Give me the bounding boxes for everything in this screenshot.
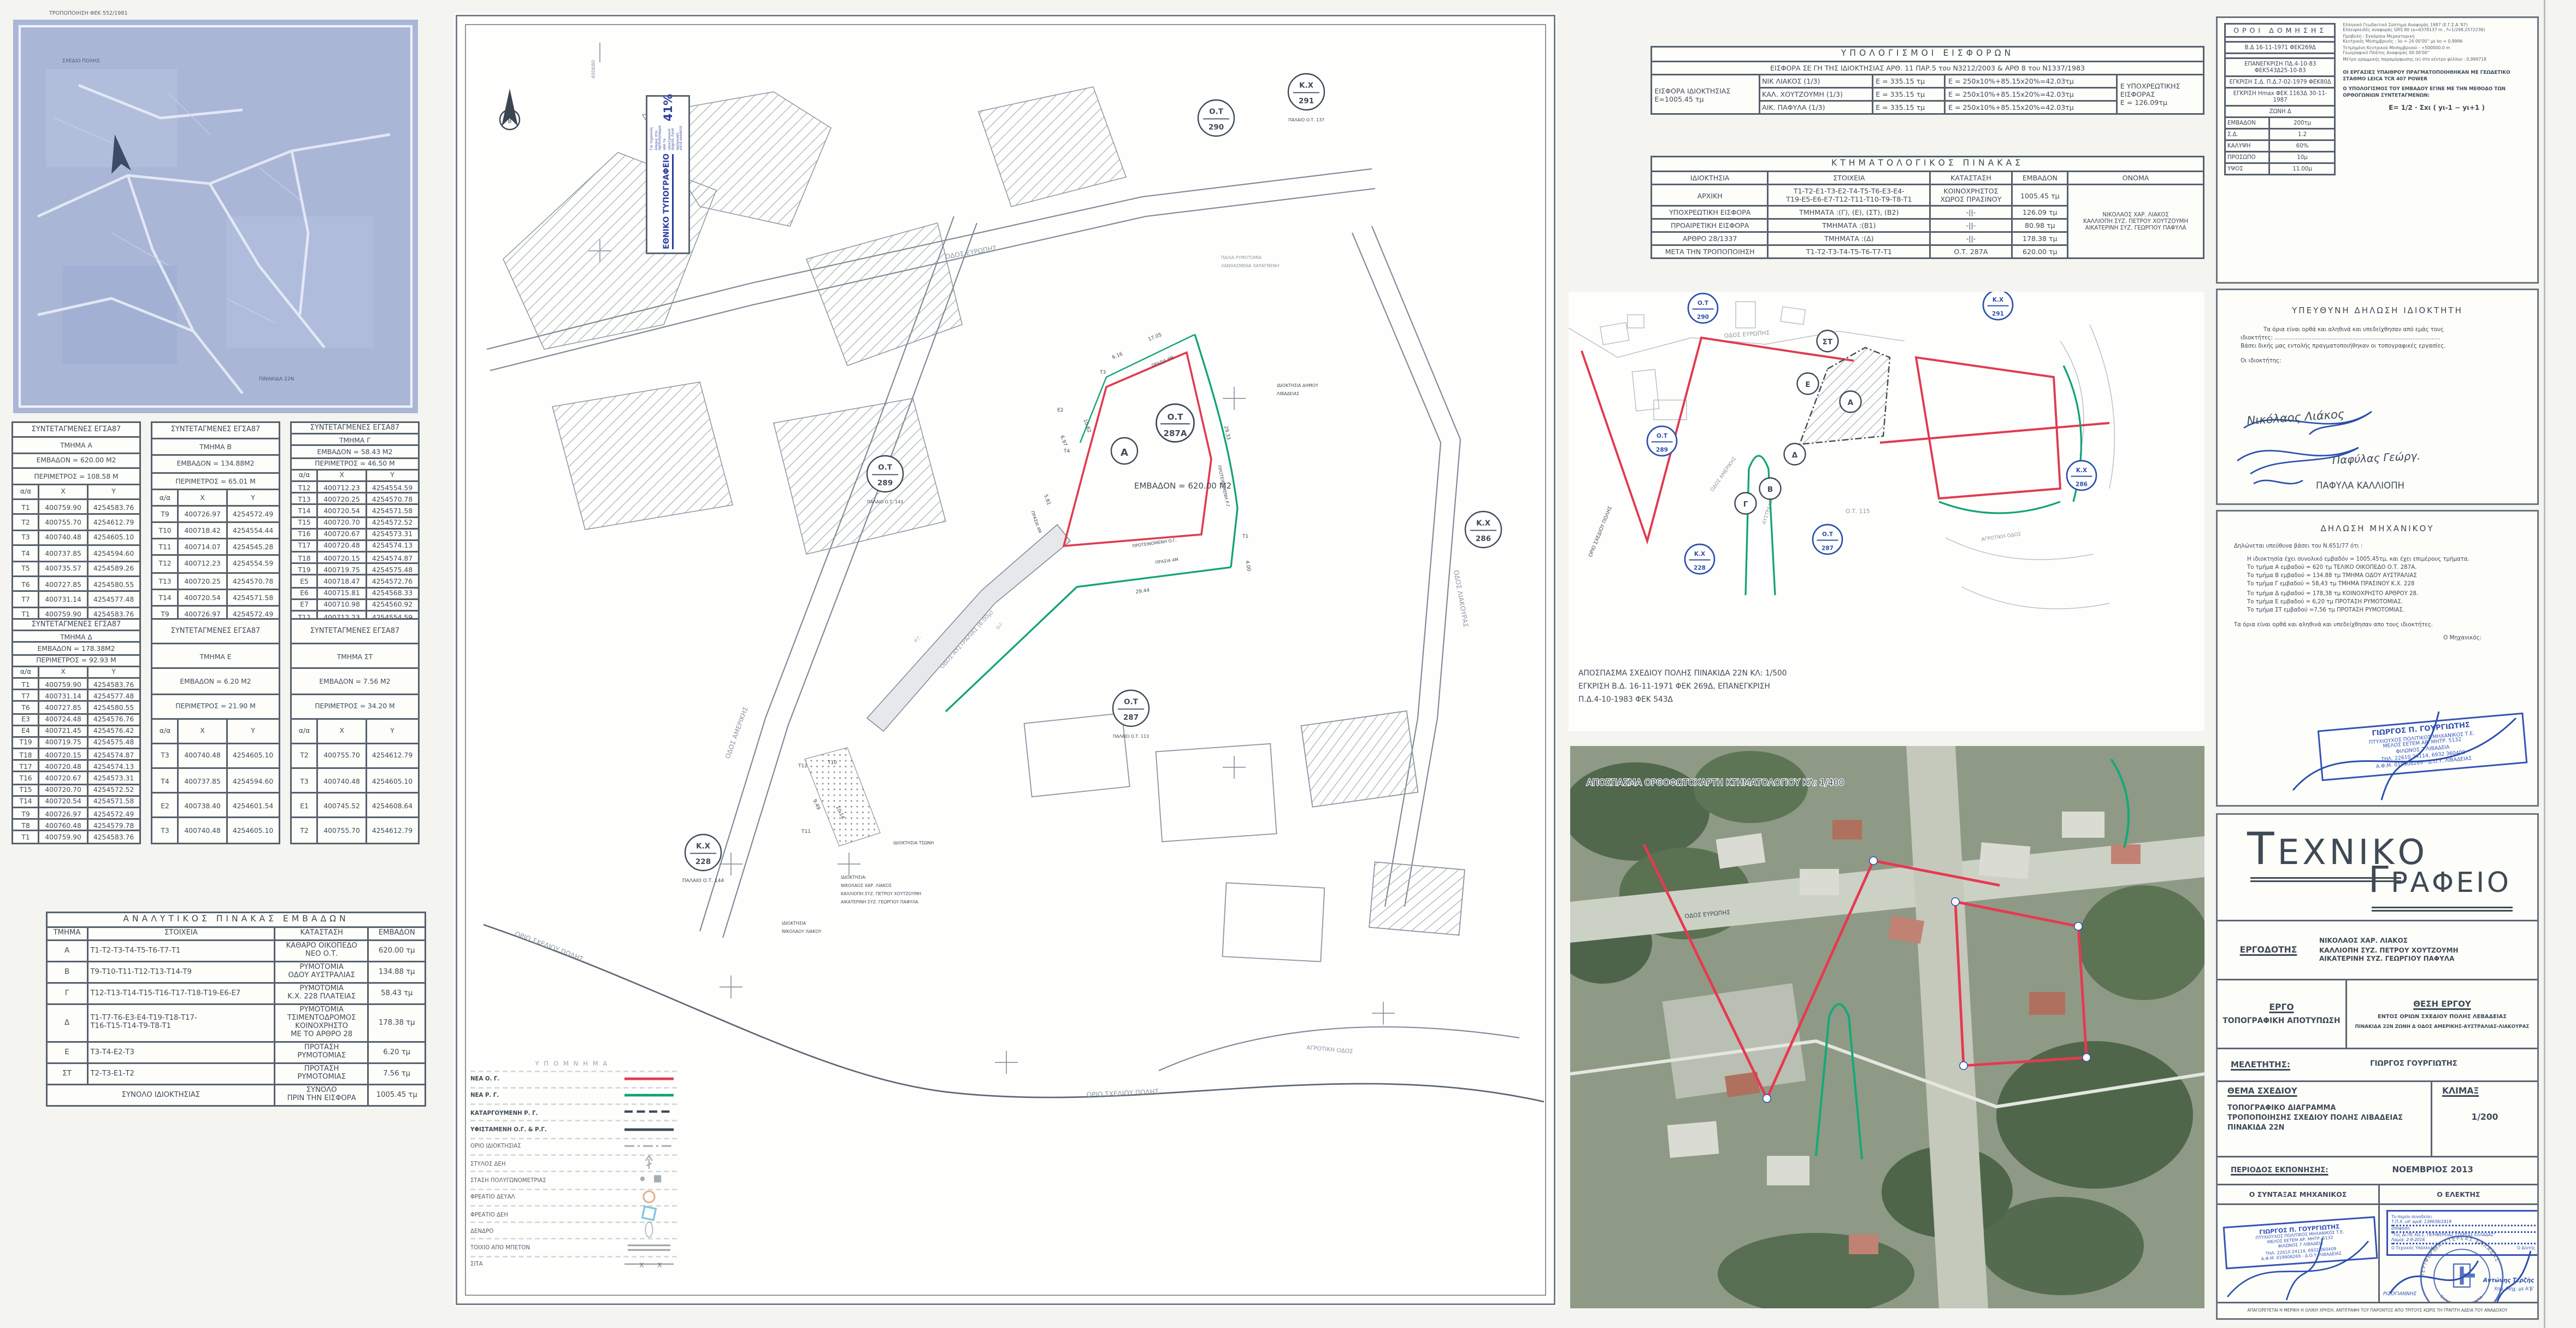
terms-row: [2225, 37, 2336, 42]
coord-row: Τ1400759.904254583.76: [13, 678, 140, 690]
north-arrow-icon: Β: [500, 89, 520, 130]
svg-text:228: 228: [1694, 565, 1706, 572]
cadastral-table: ΚΤΗΜΑΤΟΛΟΓΙΚΟΣ ΠΙΝΑΚΑΣΙΔΙΟΚΤΗΣΙΑΣΤΟΙΧΕΙΑ…: [1650, 156, 2204, 259]
coord-row: Τ15400720.704254572.52: [13, 784, 140, 796]
project-label: ΕΡΓΟ: [2269, 1003, 2294, 1013]
svg-text:ΟΡΙΟ ΣΧΕΔΙΟΥ ΠΟΛΗΣ: ΟΡΙΟ ΣΧΕΔΙΟΥ ΠΟΛΗΣ: [1087, 1088, 1159, 1098]
designer-label: ΜΕΛΕΤΗΤΗΣ:: [2218, 1060, 2290, 1070]
svg-text:ΠΙΝΑΚΙΔΑ 22Ν: ΠΙΝΑΚΙΔΑ 22Ν: [259, 377, 294, 382]
coord-row: Τ17400720.484254574.13: [13, 760, 140, 772]
coord-row: Τ14400720.544254571.58: [13, 796, 140, 808]
scale-label: ΚΛΙΜΑΞ: [2442, 1087, 2527, 1097]
brand-row: ΤΕΧΝΙΚΟ ΓΡΑΦΕΙΟ: [2218, 815, 2537, 920]
legend-item: ΣΤΥΛΟΣ ΔΕΗ: [470, 1154, 677, 1171]
coord-row: Τ11400714.074254545.28: [152, 539, 280, 556]
owner-municipality-2: ΛΙΒΑΔΕΙΑΣ: [1277, 391, 1299, 396]
legend-item-symbol: [621, 1139, 677, 1154]
coord-row: Τ13400720.254254570.78: [152, 572, 280, 589]
owner-decl-line1: Τα όρια είναι ορθά και αληθινά και υπεδε…: [2241, 326, 2518, 334]
blueprint-map-art: ΣΧΕΔΙΟ ΠΟΛΗΣ ΠΙΝΑΚΙΔΑ 22Ν: [13, 20, 418, 413]
coordinate-tables-row-2: ΣΥΝΤΕΤΑΓΜΕΝΕΣ ΕΓΣΑ87ΤΜΗΜΑ ΔΕΜΒΑΔΟΝ = 178…: [11, 618, 420, 844]
legend-item-label: ΣΙΤΑ: [470, 1261, 483, 1268]
coord-row: Τ3400740.484254605.10: [13, 530, 140, 545]
legend-item-label: ΝΕΑ Ρ. Γ.: [470, 1092, 499, 1099]
svg-text:Κ.Χ: Κ.Χ: [1993, 297, 2003, 303]
owner-signatures: Νικόλαος Λιάκος Παφύλας Γεώργ. ΠΑΦΥΛΑ ΚΑ…: [2231, 398, 2526, 500]
brand-office: ΓΡΑΦΕΙΟ: [2368, 861, 2512, 902]
svg-text:Ο.Τ: Ο.Τ: [1697, 300, 1709, 307]
boundary-label-2: ΟΡΙΟ ΣΧΕΔΙΟΥ ΠΟΛΗΣ: [1087, 1088, 1159, 1098]
note-ot113: ΠΑΛΑΙΟ Ο.Τ. 113: [1113, 734, 1149, 739]
legend-item-label: ΚΑΤΑΡΓΟΥΜΕΝΗ Ρ. Γ.: [470, 1109, 538, 1116]
coord-row: Τ18400720.154254574.87: [291, 552, 419, 564]
owner-decl-line2: ιδιοκτήτες: ............................…: [2241, 334, 2518, 343]
approval-area: Το παρόν συνοδεύειΤ.Π.Χ. υπ' αριθ. 13993…: [2380, 1205, 2537, 1302]
terms-row: Β.Δ 16-11-1971 ΦΕΚ269Δ: [2225, 42, 2336, 54]
cadastral-title: ΚΤΗΜΑΤΟΛΟΓΙΚΟΣ ΠΙΝΑΚΑΣ: [1652, 157, 2204, 172]
building-terms-table: ΟΡΟΙ ΔΟΜΗΣΗΣΒ.Δ 16-11-1971 ΦΕΚ269ΔΕΠΑΝΕΓ…: [2224, 23, 2336, 175]
titleblock-footer: ΑΠΑΓΟΡΕΥΕΤΑΙ Η ΜΕΡΙΚΗ Η ΟΛΙΚΗ ΧΡΗΣΗ, ΑΝΤ…: [2218, 1302, 2537, 1318]
approval-name-right: Αντώνης Τερζής: [2483, 1277, 2534, 1284]
coord-row: Τ1400759.904254583.76: [13, 831, 140, 843]
engineer-decl-intro: Δηλώνεται υπεύθυνα βάσει του Ν.651/77 ότ…: [2234, 543, 2521, 551]
owner-nik-2: ΝΙΚΟΛΑΟΥ ΛΙΑΚΟΥ: [782, 929, 822, 934]
field-note-2: Ο ΥΠΟΛΟΓΙΣΜΟΣ ΤΟΥ ΕΜΒΑΔΟΥ ΕΓΙΝΕ ΜΕ ΤΗΝ Μ…: [2343, 86, 2531, 99]
approval-title-right: Χημ. Μηχ. με Α'β': [2494, 1285, 2534, 1292]
coordinates-table: ΣΥΝΤΕΤΑΓΜΕΝΕΣ ΕΓΣΑ87ΤΜΗΜΑ ΕΕΜΒΑΔΟΝ = 6.2…: [151, 618, 280, 844]
areas-header: ΚΑΤΑΣΤΑΣΗ: [275, 927, 368, 941]
areas-row: ΕΤ3-Τ4-Ε2-Τ3ΠΡΟΤΑΣΗ ΡΥΜΟΤΟΜΙΑΣ6.20 τμ: [47, 1042, 426, 1063]
coord-row: Τ4400737.854254594.60: [13, 545, 140, 561]
legend-item-symbol: [621, 1154, 677, 1172]
svg-text:Β: Β: [508, 118, 511, 125]
svg-text:ΕΓΚΡΙΣΗ Β.Δ. 16-11-1971 ΦΕΚ 26: ΕΓΚΡΙΣΗ Β.Δ. 16-11-1971 ΦΕΚ 269Δ, ΕΠΑΝΕΓ…: [1578, 682, 1770, 691]
reduction-body: Για τεχνικούς λόγους στο σχεδιάγραμμα, α…: [651, 125, 685, 150]
svg-text:287Α: 287Α: [1164, 428, 1187, 438]
coord-row: Τ18400720.154254574.87: [13, 749, 140, 761]
coord-row: Τ13400720.254254570.78: [291, 493, 419, 505]
coord-row: Τ16400720.674254573.31: [291, 528, 419, 540]
excerpt-boundary-label: ΟΡΙΟ ΣΧΕΔΙΟΥ ΠΟΛΗΣ: [1588, 506, 1614, 558]
owner-tsoni: ΙΔΙΟΚΤΗΣΙΑ ΤΣΩΝΗ: [893, 841, 934, 845]
contrib-right-label: Ε ΥΠΟΧΡΕΩΤΙΚΗΣ ΕΙΣΦΟΡΑΣ Ε = 126.09τμ: [2117, 75, 2204, 114]
legend-item-label: ΣΤΑΣΗ ΠΟΛΥΓΩΝΟΜΕΤΡΙΑΣ: [470, 1177, 546, 1184]
topographic-drawing-sheet: ΤΡΟΠΟΠΟΙΗΣΗ ΦΕΚ 552/1981 ΣΧΕΔΙΟ ΠΟΛΗΣ: [0, 0, 2576, 1328]
dim-616: 6.16: [1111, 351, 1124, 361]
location-line: ΕΝΤΟΣ ΟΡΙΩΝ ΣΧΕΔΙΟΥ ΠΟΛΗΣ ΛΕΒΑΔΕΙΑΣ: [2378, 1013, 2507, 1019]
project-location-row: ΕΡΓΟ ΤΟΠΟΓΡΑΦΙΚΗ ΑΠΟΤΥΠΩΣΗ ΘΕΣΗ ΕΡΓΟΥ ΕΝ…: [2218, 979, 2537, 1048]
geodetic-note: Μέτρο γραμμικής παραμόρφωσης (κ) στο κέν…: [2343, 57, 2494, 62]
engineer-decl-line: Το τμήμα Ε εμβαδού = 6,20 τμ ΠΡΟΤΑΣΗ ΡΥΜ…: [2247, 598, 2521, 606]
block-circle-287A: Ο.Τ 287Α: [1157, 404, 1194, 442]
areas-table: ΑΝΑΛΥΤΙΚΟΣ ΠΙΝΑΚΑΣ ΕΜΒΑΔΩΝΤΜΗΜΑΣΤΟΙΧΕΙΑΚ…: [46, 912, 426, 1107]
coordinate-tables-row-1: ΣΥΝΤΕΤΑΓΜΕΝΕΣ ΕΓΣΑ87ΤΜΗΜΑ ΑΕΜΒΑΔΟΝ = 620…: [11, 421, 420, 624]
excerpt-caption: ΑΠΟΣΠΑΣΜΑ ΣΧΕΔΙΟΥ ΠΟΛΗΣ ΠΙΝΑΚΙΔΑ 22Ν ΚΛ:…: [1578, 669, 1787, 704]
owner-declaration-panel: ΥΠΕΥΘΥΝΗ ΔΗΛΩΣΗ ΙΔΙΟΚΤΗΤΗ Τα όρια είναι …: [2216, 289, 2539, 505]
terms-pair-row: ΠΡΟΣΩΠΟ10μ: [2225, 152, 2336, 163]
subject-line: ΤΟΠΟΓΡΑΦΙΚΟ ΔΙΑΓΡΑΜΜΑ: [2227, 1105, 2421, 1115]
areas-header: ΕΜΒΑΔΟΝ: [368, 927, 425, 941]
location-label: ΘΕΣΗ ΕΡΓΟΥ: [2413, 1000, 2471, 1009]
terms-title: ΟΡΟΙ ΔΟΜΗΣΗΣ: [2225, 24, 2336, 37]
coord-row: Τ4400737.854254594.60: [152, 768, 280, 794]
coord-row: Τ12400712.234254554.59: [152, 556, 280, 573]
cadastral-header: ΚΑΤΑΣΤΑΣΗ: [1930, 172, 2012, 185]
legend-item-label: ΤΟΙΧΙΟ ΑΠΟ ΜΠΕΤΟΝ: [470, 1244, 530, 1251]
point-t12: Τ12: [798, 763, 807, 769]
orthophoto-art: ΑΠΟΣΠΑΣΜΑ ΟΡΘΟΦΩΤΟΧΑΡΤΗ ΚΤΗΜΑΤΟΛΟΓΙΟΥ ΚΛ…: [1570, 746, 2204, 1308]
svg-text:ΟΡΙΟ ΣΧΕΔΙΟΥ ΠΟΛΗΣ: ΟΡΙΟ ΣΧΕΔΙΟΥ ΠΟΛΗΣ: [514, 930, 585, 963]
legend-item-label: ΦΡΕΑΤΙΟ ΔΕΥΑΛ: [470, 1194, 515, 1201]
owner-nik-1: ΙΔΙΟΚΤΗΣΙΑ: [782, 921, 806, 926]
legend-item: ΚΑΤΑΡΓΟΥΜΕΝΗ Ρ. Γ.: [470, 1103, 677, 1120]
owner-declaration-title: ΥΠΕΥΘΥΝΗ ΔΗΛΩΣΗ ΙΔΙΟΚΤΗΤΗ: [2218, 307, 2537, 316]
engineer-declaration-panel: ΔΗΛΩΣΗ ΜΗΧΑΝΙΚΟΥ Δηλώνεται υπεύθυνα βάσε…: [2216, 510, 2539, 807]
dim-1082: 10.82: [1082, 419, 1092, 434]
dim-949: 9.49: [811, 798, 821, 811]
cadastral-owner-names: ΝΙΚΟΛΑΟΣ ΧΑΡ. ΛΙΑΚΟΣ ΚΑΛΛΙΟΠΗ ΣΥΖ. ΠΕΤΡΟ…: [2068, 185, 2204, 258]
geodetic-note: Ελλειψοειδές αναφοράς GRS 80 (a=6378137 …: [2343, 28, 2494, 34]
approval-line: Τ.Π.Χ. υπ' αριθ. 139939/2419: [2391, 1219, 2536, 1226]
areas-row: ΒΤ9-Τ10-Τ11-Τ12-Τ13-Τ14-Τ9ΡΥΜΟΤΟΜΙΑ ΟΔΟΥ…: [47, 962, 426, 983]
coord-row: Τ7400731.144254577.48: [13, 690, 140, 702]
approval-line: Το παρόν συνοδεύει: [2391, 1214, 2536, 1219]
hatched-blocks: [503, 87, 1126, 554]
coord-row: Τ14400720.544254571.58: [152, 589, 280, 606]
coord-row: Τ3400740.484254605.10: [152, 818, 280, 843]
old-alignment-note-2: ΛΑΝΘΑΣΜΕΝΑ ΧΑΡΑΓΜΕΝΗ: [1221, 263, 1280, 268]
engineer-declaration-title: ΔΗΛΩΣΗ ΜΗΧΑΝΙΚΟΥ: [2218, 525, 2537, 534]
svg-text:Ο.Τ: Ο.Τ: [1822, 531, 1834, 538]
coord-row: Τ2400755.704254612.79: [291, 818, 419, 843]
geodetic-note: Κεντρικός Μεσημβρινός : λο = 24 00'00'' …: [2343, 40, 2494, 45]
svg-text:Α: Α: [1848, 398, 1854, 407]
project-value: ΤΟΠΟΓΡΑΦΙΚΗ ΑΠΟΤΥΠΩΣΗ: [2223, 1018, 2340, 1026]
coord-row: Ε6400715.814254568.33: [291, 587, 419, 599]
svg-text:Β: Β: [1767, 485, 1773, 494]
areas-row: ΓΤ12-Τ13-Τ14-Τ15-Τ16-Τ17-Τ18-Τ19-Ε6-Ε7ΡΥ…: [47, 983, 426, 1004]
legend-item: ΣΙΤΑxx: [470, 1255, 677, 1272]
point-t10: Τ10: [827, 760, 837, 766]
designer-value: ΓΙΩΡΓΟΣ ΓΟΥΡΓΙΩΤΗΣ: [2290, 1061, 2537, 1069]
owner-choutzoumi: ΚΑΛΛΙΟΠΗ ΣΥΖ. ΠΕΤΡΟΥ ΧΟΥΤΖΟΥΜΗ: [841, 891, 921, 896]
coord-row: Τ9400726.974254572.49: [152, 506, 280, 522]
point-t11: Τ11: [801, 829, 811, 835]
cadastral-row: ΑΡΧΙΚΗΤ1-Τ2-Ε1-Τ3-Ε2-Τ4-Τ5-Τ6-Ε3-Ε4- Τ19…: [1652, 185, 2204, 206]
areas-table-panel: ΑΝΑΛΥΤΙΚΟΣ ΠΙΝΑΚΑΣ ΕΜΒΑΔΩΝΤΜΗΜΑΣΤΟΙΧΕΙΑΚ…: [46, 912, 426, 1107]
coord-row: Τ6400727.854254580.55: [13, 576, 140, 591]
legend-item-symbol: [621, 1072, 677, 1086]
coord-row: Ε4400721.454254576.42: [13, 725, 140, 737]
engineer-decl-line: Το τμήμα Β εμβαδού = 134.88 τμ ΤΜΗΜΑ ΟΔΟ…: [2247, 573, 2521, 581]
author-label: Ο ΣΥΝΤΑΞΑΣ ΜΗΧΑΝΙΚΟΣ: [2218, 1185, 2380, 1203]
legend-item: ΥΦΙΣΤΑΜΕΝΗ Ο.Γ. & Ρ.Γ.: [470, 1120, 677, 1137]
blueprint-caption: ΤΡΟΠΟΠΟΙΗΣΗ ΦΕΚ 552/1981: [49, 10, 128, 16]
coord-row: Τ19400719.754254575.48: [291, 563, 419, 575]
cadastral-panel: ΚΤΗΜΑΤΟΛΟΓΙΚΟΣ ΠΙΝΑΚΑΣΙΔΙΟΚΤΗΣΙΑΣΤΟΙΧΕΙΑ…: [1650, 156, 2204, 259]
field-note-1: ΟΙ ΕΡΓΑΣΙΕΣ ΥΠΑΙΘΡΟΥ ΠΡΑΓΜΑΤΟΠΟΙΗΘΗΚΑΝ Μ…: [2343, 69, 2531, 82]
owner-decl-signer-label: Οι ιδιοκτήτης:: [2241, 358, 2518, 366]
terms-row: [2225, 54, 2336, 58]
terms-pair-row: ΥΨΟΣ11.00μ: [2225, 163, 2336, 175]
subject-scale-row: ΘΕΜΑ ΣΧΕΔΙΟΥ ΤΟΠΟΓΡΑΦΙΚΟ ΔΙΑΓΡΑΜΜΑ ΤΡΟΠΟ…: [2218, 1080, 2537, 1156]
coord-row: Τ15400720.704254572.52: [291, 516, 419, 528]
area-formula: Ε= 1/2 · Σxι ( yι-1 − yι+1 ): [2343, 104, 2531, 112]
svg-text:x: x: [639, 1260, 644, 1270]
building-terms-panel: ΟΡΟΙ ΔΟΜΗΣΗΣΒ.Δ 16-11-1971 ΦΕΚ269ΔΕΠΑΝΕΓ…: [2216, 16, 2539, 284]
legend-item-label: ΥΦΙΣΤΑΜΕΝΗ Ο.Γ. & Ρ.Γ.: [470, 1126, 547, 1133]
contrib-left-label: ΕΙΣΦΟΡΑ ΙΔΙΟΚΤΗΣΙΑΣ Ε=1005.45 τμ: [1652, 75, 1759, 114]
engineer-signature-squiggle: [2283, 708, 2529, 803]
svg-text:ΑΠΟΣΠΑΣΜΑ ΣΧΕΔΙΟΥ ΠΟΛΗΣ ΠΙΝΑΚΙ: ΑΠΟΣΠΑΣΜΑ ΣΧΕΔΙΟΥ ΠΟΛΗΣ ΠΙΝΑΚΙΔΑ 22Ν ΚΛ:…: [1578, 669, 1787, 678]
stamps-row: ΓΙΩΡΓΟΣ Π. ΓΟΥΡΓΙΩΤΗΣ ΠΤΥΧΙΟΥΧΟΣ ΠΟΛΙΤΙΚ…: [2218, 1203, 2537, 1302]
engineer-decl-line: Το τμήμα Δ εμβαδού = 178,38 τμ ΚΟΙΝΟΧΡΗΣ…: [2247, 590, 2521, 598]
coord-row: Τ6400727.854254580.55: [13, 701, 140, 713]
cadastral-header: ΣΤΟΙΧΕΙΑ: [1769, 172, 1930, 185]
legend-item-symbol: [621, 1188, 677, 1206]
areas-total-row: ΣΥΝΟΛΟ ΙΔΙΟΚΤΗΣΙΑΣΣΥΝΟΛΟ ΠΡΙΝ ΤΗΝ ΕΙΣΦΟΡ…: [47, 1085, 426, 1106]
excerpt-street-rural: ΑΓΡΟΤΙΚΗ ΟΔΟΣ: [1981, 532, 2021, 543]
contrib-title: ΥΠΟΛΟΓΙΣΜΟΙ ΕΙΣΦΟΡΩΝ: [1652, 47, 2204, 62]
owner-municipality-1: ΙΔΙΟΚΤΗΣΙΑ ΔΗΜΟΥ: [1277, 383, 1318, 388]
svg-text:Ο.Τ: Ο.Τ: [878, 463, 893, 472]
svg-text:289: 289: [877, 479, 893, 487]
legend-item-symbol: [621, 1220, 677, 1242]
street-label-america: ΟΔΟΣ ΑΜΕΡΙΚΗΣ: [724, 706, 750, 760]
orthophoto-caption: ΑΠΟΣΠΑΣΜΑ ΟΡΘΟΦΩΤΟΧΑΡΤΗ ΚΤΗΜΑΤΟΛΟΓΙΟΥ ΚΛ…: [1587, 778, 1844, 788]
scale-value: 1/200: [2442, 1113, 2527, 1123]
areas-row: ΑΤ1-Τ2-Τ3-Τ4-Τ5-Τ6-Τ7-Τ1ΚΑΘΑΡΟ ΟΙΚΟΠΕΔΟ …: [47, 941, 426, 962]
plot-area-label: ΕΜΒΑΔΟΝ = 620.00 Μ2: [1134, 481, 1231, 491]
subject-line: ΠΙΝΑΚΙΔΑ 22Ν: [2227, 1125, 2421, 1135]
contrib-row: ΕΙΣΦΟΡΑ ΙΔΙΟΚΤΗΣΙΑΣ Ε=1005.45 τμΝΙΚ ΛΙΑΚ…: [1652, 75, 2204, 88]
legend-item-label: ΦΡΕΑΤΙΟ ΔΕΗ: [470, 1211, 508, 1218]
contributions-panel: ΥΠΟΛΟΓΙΣΜΟΙ ΕΙΣΦΟΡΩΝΕΙΣΦΟΡΑ ΣΕ ΓΗ ΤΗΣ ΙΔ…: [1650, 46, 2204, 115]
coord-row: Τ14400720.544254571.58: [291, 504, 419, 516]
coord-row: Τ16400720.674254573.31: [13, 772, 140, 784]
coordinates-table: ΣΥΝΤΕΤΑΓΜΕΝΕΣ ΕΓΣΑ87ΤΜΗΜΑ ΑΕΜΒΑΔΟΝ = 620…: [11, 421, 141, 624]
engineer-signer-label: Ο Μηχανικός:: [2234, 634, 2521, 643]
legend-item-symbol: [621, 1123, 677, 1137]
contributions-table: ΥΠΟΛΟΓΙΣΜΟΙ ΕΙΣΦΟΡΩΝΕΙΣΦΟΡΑ ΣΕ ΓΗ ΤΗΣ ΙΔ…: [1650, 46, 2204, 115]
designer-row: ΜΕΛΕΤΗΤΗΣ: ΓΙΩΡΓΟΣ ΓΟΥΡΓΙΩΤΗΣ: [2218, 1048, 2537, 1080]
legend-item-symbol: [621, 1106, 677, 1120]
owner-pafyla: ΑΙΚΑΤΕΡΙΝΗ ΣΥΖ. ΓΕΩΡΓΙΟΥ ΠΑΦΥΛΑ: [841, 900, 918, 904]
svg-text:Δ: Δ: [1792, 451, 1798, 460]
coord-row: Τ3400740.484254605.10: [152, 743, 280, 768]
legend-title: ΥΠΟΜΝΗΜΑ: [470, 1059, 677, 1067]
svg-text:290: 290: [1209, 123, 1224, 132]
title-block: ΤΕΧΝΙΚΟ ΓΡΑΦΕΙΟ ΕΡΓΟΔΟΤΗΣ ΝΙΚΟΛΑΟΣ ΧΑΡ. …: [2216, 813, 2539, 1320]
owner-decl-line3: Βάσει δικής μας εντολής πραγματοποιήθηκα…: [2241, 343, 2518, 351]
orthophoto-panel: ΑΠΟΣΠΑΣΜΑ ΟΡΘΟΦΩΤΟΧΑΡΤΗ ΚΤΗΜΑΤΟΛΟΓΙΟΥ ΚΛ…: [1570, 746, 2204, 1308]
svg-text:291: 291: [1299, 97, 1314, 105]
sheet-fold-strip: [2544, 0, 2576, 1328]
subject-label: ΘΕΜΑ ΣΧΕΔΙΟΥ: [2227, 1087, 2421, 1097]
point-e2: Ε2: [1057, 408, 1063, 413]
prasia-left: ΠΡΑΣΙΑ 4Μ: [1030, 510, 1042, 534]
legend-item: ΔΕΝΔΡΟ: [470, 1222, 677, 1239]
coord-row: Ε7400710.984254560.92: [291, 599, 419, 611]
coord-row: Τ5400735.574254589.26: [13, 561, 140, 576]
svg-text:ΣΧΕΔΙΟ ΠΟΛΗΣ: ΣΧΕΔΙΟ ΠΟΛΗΣ: [62, 58, 100, 64]
coord-row: Τ19400719.754254575.48: [13, 737, 140, 749]
period-value: ΝΟΕΜΒΡΙΟΣ 2013: [2329, 1166, 2537, 1176]
excerpt-ot115: Ο.Τ. 115: [1846, 508, 1870, 515]
svg-text:Κ.Χ: Κ.Χ: [1694, 551, 1705, 557]
areas-row: ΣΤΤ2-Τ3-Ε1-Τ2ΠΡΟΤΑΣΗ ΡΥΜΟΤΟΜΙΑΣ7.56 τμ: [47, 1063, 426, 1085]
og-label: Ο.Γ.: [995, 621, 1005, 631]
coord-row: Τ7400731.144254577.48: [13, 591, 140, 607]
employer-row: ΕΡΓΟΔΟΤΗΣ ΝΙΚΟΛΑΟΣ ΧΑΡ. ΛΙΑΚΟΣ ΚΑΛΛΙΟΠΗ …: [2218, 920, 2537, 979]
dim-400: 4.00: [1244, 560, 1251, 572]
legend-item-label: ΟΡΙΟ ΙΔΙΟΚΤΗΣΙΑΣ: [470, 1143, 521, 1150]
contrib-subtitle: ΕΙΣΦΟΡΑ ΣΕ ΓΗ ΤΗΣ ΙΔΙΟΚΤΗΣΙΑΣ ΑΡΘ. 11 ΠΑ…: [1652, 62, 2204, 75]
owner-liakos: ΝΙΚΟΛΑΟΣ ΧΑΡ. ΛΙΑΚΟΣ: [841, 883, 892, 888]
svg-text:ΣΤ: ΣΤ: [1823, 338, 1833, 346]
blueprint-inset-map: ΣΧΕΔΙΟ ΠΟΛΗΣ ΠΙΝΑΚΙΔΑ 22Ν: [13, 20, 418, 413]
engineer-decl-line: Η ιδιοκτησία έχει συνολικό εμβαδόν = 100…: [2247, 556, 2521, 564]
approval-name-left: ΡΙΖΟΓΙΑΝΝΗΣ: [2383, 1290, 2416, 1297]
cadastral-header: ΙΔΙΟΚΤΗΣΙΑ: [1652, 172, 1769, 185]
svg-text:290: 290: [1697, 314, 1709, 321]
terms-pair-row: ΚΑΛΥΨΗ60%: [2225, 140, 2336, 152]
point-t3: Τ3: [1099, 370, 1106, 375]
svg-text:Π.Δ.4-10-1983 ΦΕΚ 543Δ: Π.Δ.4-10-1983 ΦΕΚ 543Δ: [1578, 695, 1673, 704]
areas-header: ΤΜΗΜΑ: [47, 927, 87, 941]
excerpt-green-lines: [1746, 366, 2081, 595]
legend-item-symbol: xx: [621, 1258, 677, 1272]
svg-text:286: 286: [2076, 481, 2088, 488]
coord-row: Ε2400738.404254601.54: [152, 793, 280, 818]
prasia-top: ΠΡΑΣΙΑ 4Μ: [1151, 355, 1174, 368]
employer-line: ΑΙΚΑΤΕΡΙΝΗ ΣΥΖ. ΓΕΩΡΓΙΟΥ ΠΑΦΥΛΑ: [2319, 955, 2537, 963]
svg-text:x: x: [657, 1260, 662, 1270]
reduction-percent: 41%: [662, 94, 675, 121]
terms-row: ΖΩΝΗ Δ: [2225, 106, 2336, 117]
prasia-bottom: ΠΡΑΣΙΑ 4Μ: [1155, 557, 1178, 565]
street-label-liakoura: ΟΔΟΣ ΛΙΑΚΟΥΡΑΣ: [1452, 569, 1470, 628]
legend-item-label: ΣΤΥΛΟΣ ΔΕΗ: [470, 1160, 506, 1167]
coord-row: Τ2400755.704254612.79: [13, 515, 140, 530]
location-line: ΠΙΝΑΚΙΔΑ 22Ν ΖΩΝΗ Δ ΟΔΟΣ ΑΜΕΡΙΚΗΣ-ΑΥΣΤΡΑ…: [2355, 1023, 2529, 1029]
legend-item-label: ΝΕΑ Ο. Γ.: [470, 1076, 499, 1082]
legend-item-symbol: [621, 1173, 677, 1188]
svg-text:Κ.Χ: Κ.Χ: [1299, 81, 1314, 90]
excerpt-buildings: [1569, 302, 2114, 609]
legend-item-symbol: [621, 1241, 677, 1255]
geodetic-notes: Ελληνικό Γεωδαιτικό Σύστημα Αναφοράς 198…: [2343, 23, 2494, 62]
engineer-decl-line: Το τμήμα Α εμβαδού = 620 τμ ΤΕΛΙΚΟ ΟΙΚΟΠ…: [2247, 565, 2521, 573]
note-ot144: ΠΑΛΑΙΟ Ο.Τ. 144: [682, 878, 724, 884]
coordinates-table: ΣΥΝΤΕΤΑΓΜΕΝΕΣ ΕΓΣΑ87ΤΜΗΜΑ ΓΕΜΒΑΔΟΝ = 58.…: [290, 421, 420, 624]
svg-text:Ο.Τ: Ο.Τ: [1209, 108, 1224, 116]
areas-table-title: ΑΝΑΛΥΤΙΚΟΣ ΠΙΝΑΚΑΣ ΕΜΒΑΔΩΝ: [47, 913, 426, 927]
dim-581: 5.81: [1042, 494, 1051, 506]
svg-text:Κ.Χ: Κ.Χ: [696, 842, 711, 851]
signature-3: ΠΑΦΥΛΑ ΚΑΛΛΙΟΠΗ: [2316, 480, 2404, 491]
coord-row: Τ1400759.904254583.76: [13, 499, 140, 514]
legend-item: ΦΡΕΑΤΙΟ ΔΕΥΑΛ: [470, 1188, 677, 1205]
dim-697: 6.97: [1059, 435, 1068, 447]
svg-text:Γ: Γ: [1743, 500, 1748, 509]
reduction-title: ΕΘΝΙΚΟ ΤΥΠΟΓΡΑΦΕΙΟ: [663, 154, 673, 249]
legend-item-symbol: [621, 1089, 677, 1103]
svg-text:287: 287: [1123, 713, 1139, 722]
period-label: ΠΕΡΙΟΔΟΣ ΕΚΠΟΝΗΣΗΣ:: [2218, 1167, 2329, 1175]
legend-item: ΣΤΑΣΗ ΠΟΛΥΓΩΝΟΜΕΤΡΙΑΣ: [470, 1171, 677, 1188]
reduction-note-box: ΕΘΝΙΚΟ ΤΥΠΟΓΡΑΦΕΙΟ Για τεχνικούς λόγους …: [646, 95, 690, 254]
coord-row: Ε3400724.484254576.76: [13, 713, 140, 725]
svg-text:291: 291: [1992, 311, 2004, 318]
coord-row: Τ9400726.974254572.49: [13, 808, 140, 820]
terms-row: ΕΓΚΡΙΣΗ Σ.Δ. Π.Δ.7-02-1979 ΦΕΚ80Δ: [2225, 77, 2336, 88]
areas-row: ΔΤ1-Τ7-Τ6-Ε3-Ε4-Τ19-Τ18-Τ17- Τ16-Τ15-Τ14…: [47, 1004, 426, 1042]
old-alignment-strip: [805, 748, 880, 846]
legend-item: ΤΟΙΧΙΟ ΑΠΟ ΜΠΕΤΟΝ: [470, 1238, 677, 1255]
engineer-decl-closing: Τα όρια είναι ορθά και αληθινά και υπεδε…: [2234, 621, 2521, 630]
svg-text:228: 228: [695, 857, 711, 866]
areas-header: ΣΤΟΙΧΕΙΑ: [87, 927, 275, 941]
coord-row: Τ10400718.424254554.44: [152, 522, 280, 539]
legend-item: ΝΕΑ Ρ. Γ.: [470, 1086, 677, 1103]
note-ot143: ΠΑΛΑΙΟ Ο.Τ. 143: [867, 500, 903, 504]
main-topographic-plan: 400680 ΟΔΟΣ ΕΥΡΩΠΗΣ ΟΔΟΣ ΑΜ: [454, 13, 1557, 1307]
australias-corridor: [867, 525, 1070, 731]
employer-label: ΕΡΓΟΔΟΤΗΣ: [2218, 921, 2319, 979]
employer-line: ΝΙΚΟΛΑΟΣ ΧΑΡ. ΛΙΑΚΟΣ: [2319, 937, 2537, 945]
terms-pair-row: ΕΜΒΑΔΟΝ200τμ: [2225, 117, 2336, 129]
old-alignment-note-1: ΠΑΛΙΑ ΡΥΜΟΤΟΜΙΑ: [1221, 255, 1262, 260]
coordinates-table: ΣΥΝΤΕΤΑΓΜΕΝΕΣ ΕΓΣΑ87ΤΜΗΜΑ ΣΤΕΜΒΑΔΟΝ = 7.…: [290, 618, 420, 844]
owners-label: ΙΔΙΟΚΤΗΣΙΑ:: [841, 875, 866, 880]
dim-1705: 17.05: [1147, 332, 1163, 343]
note-ot137: ΠΑΛΑΙΟ Ο.Τ. 137: [1288, 117, 1324, 122]
point-t1: Τ1: [1242, 534, 1248, 539]
legend-item-label: ΔΕΝΔΡΟ: [470, 1227, 493, 1234]
street-label-rural: ΑΓΡΟΤΙΚΗ ΟΔΟΣ: [1306, 1044, 1353, 1055]
cadastral-header: ΟΝΟΜΑ: [2068, 172, 2204, 185]
boundary-label-1: ΟΡΙΟ ΣΧΕΔΙΟΥ ΠΟΛΗΣ: [514, 930, 585, 963]
coord-row: Τ17400720.484254574.13: [291, 540, 419, 552]
coord-row: Τ2400755.704254612.79: [291, 743, 419, 768]
svg-text:Ο.Τ: Ο.Τ: [1124, 698, 1139, 707]
coord-row: Τ12400712.234254554.59: [291, 481, 419, 493]
svg-text:Κ.Χ: Κ.Χ: [1476, 519, 1491, 528]
svg-text:Ο.Τ: Ο.Τ: [1168, 412, 1183, 422]
coord-row: Ε5400718.474254572.76: [291, 575, 419, 587]
terms-row: ΕΓΚΡΙΣΗ Hmax ΦΕΚ 1163Δ 30-11-1987: [2225, 88, 2336, 106]
svg-text:Α: Α: [1121, 447, 1128, 459]
svg-text:287: 287: [1822, 545, 1834, 552]
period-row: ΠΕΡΙΟΔΟΣ ΕΚΠΟΝΗΣΗΣ: ΝΟΕΜΒΡΙΟΣ 2013: [2218, 1156, 2537, 1184]
engineer-decl-line: Το τμήμα ΣΤ εμβαδού =7,56 τμ ΠΡΟΤΑΣΗ ΡΥΜ…: [2247, 606, 2521, 614]
legend: ΥΠΟΜΝΗΜΑ ΝΕΑ Ο. Γ.ΝΕΑ Ρ. Γ.ΚΑΤΑΡΓΟΥΜΕΝΗ …: [470, 1059, 677, 1276]
point-t4: Τ4: [1063, 449, 1070, 454]
excerpt-art: ΟΔΟΣ ΕΥΡΩΠΗΣ ΟΔΟΣ ΑΜΕΡΙΚΗΣ ΑΥΣΤΡΑΛΙΑΣ ΑΓ…: [1569, 292, 2204, 731]
engineer-decl-line: Το τμήμα Γ εμβαδού = 58,43 τμ ΤΜΗΜΑ ΠΡΑΣ…: [2247, 581, 2521, 589]
excerpt-street-europe: ΟΔΟΣ ΕΥΡΩΠΗΣ: [1724, 330, 1770, 339]
dim-2944: 29.44: [1135, 587, 1150, 595]
street-label-europe: ΟΔΟΣ ΕΥΡΩΠΗΣ: [945, 244, 997, 261]
rg-label: Ρ.Γ.: [913, 634, 922, 643]
legend-item: ΦΡΕΑΤΙΟ ΔΕΗ: [470, 1205, 677, 1222]
terms-pair-row: Σ.Δ.1.2: [2225, 129, 2336, 140]
legend-item: ΟΡΙΟ ΙΔΙΟΚΤΗΣΙΑΣ: [470, 1137, 677, 1154]
legend-item: ΝΕΑ Ο. Γ.: [470, 1070, 677, 1087]
coordinates-table: ΣΥΝΤΕΤΑΓΜΕΝΕΣ ΕΓΣΑ87ΤΜΗΜΑ ΒΕΜΒΑΔΟΝ = 134…: [151, 421, 280, 624]
coord-row: Τ8400760.484254579.78: [13, 819, 140, 831]
